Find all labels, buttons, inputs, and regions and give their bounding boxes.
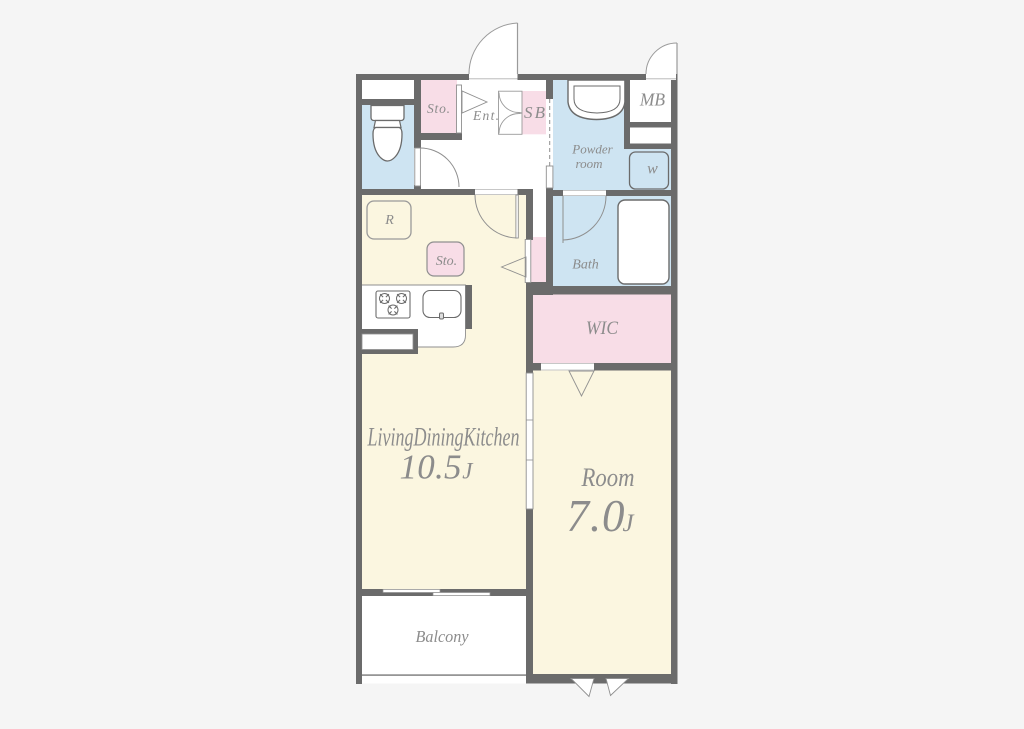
svg-text:J: J (462, 459, 474, 484)
svg-text:7.0: 7.0 (567, 491, 625, 541)
svg-text:Bath: Bath (572, 258, 598, 273)
svg-text:Sto.: Sto. (427, 101, 450, 116)
svg-text:Ent.: Ent. (472, 108, 499, 123)
svg-text:w: w (647, 161, 658, 178)
svg-text:J: J (623, 510, 636, 537)
svg-text:MB: MB (639, 90, 666, 110)
svg-text:room: room (576, 156, 603, 171)
svg-text:R: R (384, 213, 394, 228)
svg-text:WIC: WIC (586, 319, 619, 339)
svg-text:Sto.: Sto. (436, 254, 457, 269)
svg-text:Room: Room (581, 463, 635, 492)
svg-text:Balcony: Balcony (416, 627, 469, 646)
svg-text:Powder: Powder (571, 142, 613, 157)
svg-text:10.5: 10.5 (400, 448, 462, 487)
svg-text:SB: SB (524, 103, 546, 122)
